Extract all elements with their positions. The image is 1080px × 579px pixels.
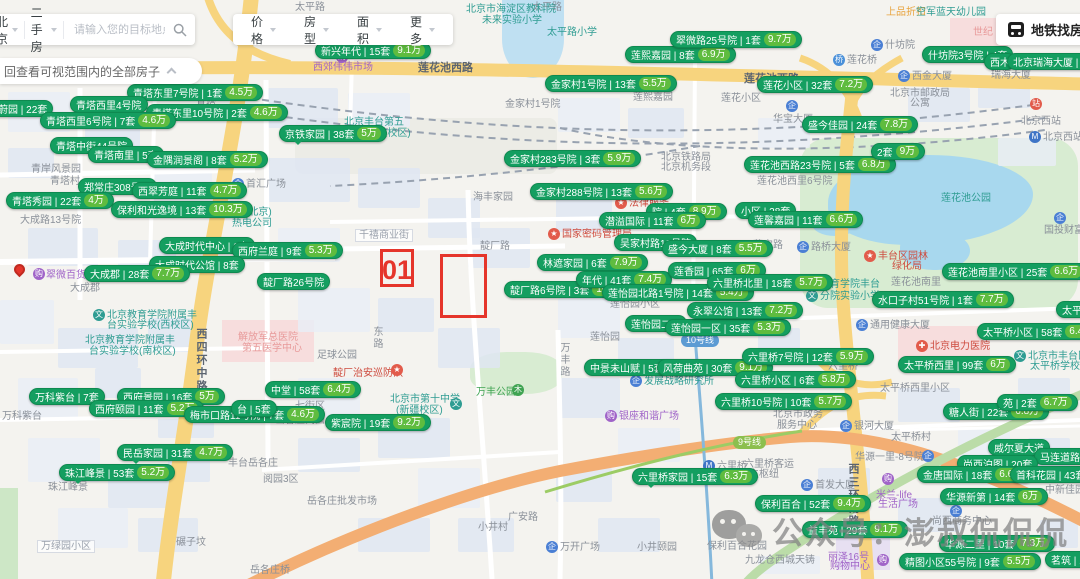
listing-badge-price: 6.4万 [1065, 325, 1080, 338]
listing-badge[interactable]: 华源二里 | 10套7.3万 [939, 535, 1055, 552]
listing-badge-price: 4.5万 [225, 86, 257, 99]
listing-badge-price: 4.7万 [210, 184, 242, 197]
listing-badge[interactable]: 西翠芳庭 | 11套4.7万 [132, 182, 247, 199]
listing-badge-label: 万科紫台 | 7套 [35, 389, 99, 404]
listing-badge-label: 蔚园 | 22套 [0, 101, 47, 116]
listing-badge-label: 太平桥 [1062, 302, 1080, 317]
listing-badge[interactable]: 莲花小区 | 32套7.2万 [757, 76, 873, 93]
listing-badge-price: 6万 [986, 358, 1010, 371]
listing-badge-label: 水口子村51号院 | 1套 [878, 292, 973, 307]
listing-badge[interactable]: 太平桥小区 | 58套6.4万 [977, 323, 1080, 340]
listing-badge-label: 益丰苑 | 29套 [808, 522, 867, 537]
listing-badge-label: 青塔西里4号院 [76, 97, 142, 112]
listing-badge-label: 莲花小区 | 32套 [763, 77, 832, 92]
listing-badge-price: 5.5万 [735, 242, 767, 255]
listing-badge-price: 4.6万 [138, 114, 170, 127]
listing-badge-label: 民岳家园 | 31套 [123, 445, 192, 460]
listing-badge-price: 6.6万 [1050, 265, 1080, 278]
listing-badge-price: 5.2万 [137, 466, 169, 479]
listing-badge-label: 金唐国际 | 18套 [923, 467, 992, 482]
listing-badge-label: 北京瑞海大厦 | 1套 [1013, 54, 1080, 69]
listing-badge-price: 4万 [84, 194, 108, 207]
listing-badge-label: 金家村288号院 | 13套 [536, 184, 632, 199]
listing-badge[interactable]: 金家村1号院 | 13套5.5万 [545, 75, 677, 92]
listing-badge-label: 大成郡 | 28套 [90, 266, 149, 281]
listing-badge[interactable]: 六里桥7号院 | 12套5.9万 [742, 348, 874, 365]
map-screen: 太平路太平路北京市海淀区教科院未来实验小学太平路小学上品折扣空军蓝天幼儿园世纪青… [0, 0, 1080, 579]
listing-badge[interactable]: 中堂 | 58套6.4万 [265, 381, 361, 398]
listing-badge[interactable]: 益丰苑 | 29套9.1万 [802, 521, 908, 538]
city-selector[interactable]: 北京 [0, 13, 24, 47]
listing-badge[interactable]: 莲熙嘉园 | 8套6.9万 [625, 46, 736, 63]
chevron-down-icon [323, 28, 329, 35]
listing-badge[interactable]: 太平桥西里 | 99套6万 [898, 356, 1016, 373]
listing-badge[interactable]: 华源新第 | 14套6万 [940, 488, 1048, 505]
listing-badge-label: 六里桥家园 | 15套 [638, 469, 717, 484]
listing-badge[interactable]: 潜溢国际 | 11套6万 [599, 212, 706, 229]
listing-badge-price: 5.5万 [1003, 555, 1035, 568]
listing-badge-price: 5.8万 [818, 373, 850, 386]
filter-card: 价格 房型 面积 更多 [233, 14, 453, 45]
metro-search-button[interactable]: 地铁找房 [996, 14, 1080, 45]
listing-badge[interactable]: 莲馨嘉园 | 11套6.6万 [748, 211, 863, 228]
listing-badge-label: 华源二里 | 10套 [945, 536, 1014, 551]
listing-badge-price: 5.9万 [603, 152, 635, 165]
chevron-up-icon[interactable] [167, 68, 177, 78]
listing-badge-label: 翠微路25号院 | 1套 [676, 32, 761, 47]
listing-badge[interactable]: 莲花池南里小区 | 25套6.6万 [942, 263, 1080, 280]
listing-badge[interactable]: 茗筑 | 17套 [1045, 551, 1080, 568]
listing-badge-label: 茗筑 | 17套 [1051, 552, 1080, 567]
listing-badge[interactable]: 大成郡 | 28套7.7万 [84, 265, 190, 282]
listing-badge-price: 5万 [357, 127, 381, 140]
annotation-rect-2 [440, 254, 487, 318]
listing-badge-label: 永翠公馆 | 13套 [693, 303, 762, 318]
filter-price[interactable]: 价格 [237, 13, 290, 47]
listing-badge-label: 中堂 | 58套 [271, 382, 320, 397]
listing-badge-price: 4.6万 [287, 408, 319, 421]
search-icon[interactable] [173, 23, 187, 37]
listing-badge-label: 潜溢国际 | 11套 [605, 213, 674, 228]
listing-badge[interactable]: 金家村283号院 | 3套5.9万 [504, 150, 641, 167]
listing-badge-price: 5.3万 [305, 244, 337, 257]
listing-badge[interactable]: 京铁家园 | 38套5万 [279, 125, 387, 142]
listing-badge-price: 7.8万 [880, 118, 912, 131]
listing-badge-label: 盛今大厦 | 8套 [668, 241, 732, 256]
listing-badge[interactable]: 六里桥北里 | 18套5.7万 [707, 274, 833, 291]
listing-badge-price: 6.9万 [698, 48, 730, 61]
category-selector[interactable]: 二手房 [25, 4, 64, 55]
filter-price-label: 价格 [251, 13, 266, 47]
listing-badge-price: 9.1万 [870, 523, 902, 536]
listing-badge-label: 马连道路13号院 [1040, 449, 1080, 464]
listing-badge-price: 9.7万 [764, 33, 796, 46]
listing-badge-label: 六里桥小区 | 6套 [741, 372, 815, 387]
filter-more[interactable]: 更多 [396, 13, 449, 47]
listing-badge[interactable]: 水口子村51号院 | 1套7.7万 [872, 291, 1014, 308]
listing-badge-label: 青塔东里7号院 | 1套 [133, 85, 222, 100]
listing-badge-price: 5.9万 [836, 350, 868, 363]
listing-badge[interactable]: 保利和光逸境 | 13套10.3万 [111, 201, 253, 218]
listing-badge[interactable]: 紫宸院 | 19套9.2万 [325, 414, 431, 431]
listing-badge-label: 紫宸院 | 19套 [331, 415, 390, 430]
category-label: 二手房 [31, 4, 48, 55]
listing-badge-label: 青塔西里6号院 | 7套 [46, 113, 135, 128]
listing-badge[interactable]: 六里桥家园 | 15套6.3万 [632, 468, 758, 485]
listing-badge-label: 金隅润景阁 | 8套 [153, 152, 227, 167]
metro-icon [1008, 22, 1024, 37]
chevron-down-icon [270, 28, 276, 35]
listing-badge-price: 7.7万 [976, 293, 1008, 306]
listing-badge-label: 京铁家园 | 38套 [285, 126, 354, 141]
listing-badge[interactable]: 保利百合 | 52套9.4万 [755, 495, 871, 512]
listing-badge-label: 莲花池西路23号院 | 5套 [750, 157, 855, 172]
chevron-down-icon [429, 28, 435, 35]
listing-badge[interactable]: 民岳家园 | 31套4.7万 [117, 444, 233, 461]
listing-badge-label: 金家村1号院 | 13套 [551, 76, 636, 91]
filter-layout-label: 房型 [304, 13, 319, 47]
listing-badge[interactable]: 莲怡园一区 | 35套5.3万 [665, 319, 791, 336]
listing-badge[interactable]: 盛今佳园 | 24套7.8万 [802, 116, 918, 133]
listing-badge-label: 西府颐园 | 11套 [95, 401, 164, 416]
listing-badge-price: 6.6万 [826, 213, 858, 226]
listing-badge-price: 5.7万 [795, 276, 827, 289]
listing-badge-label: 2套 [877, 144, 893, 159]
listing-badge-price: 5.7万 [814, 395, 846, 408]
listing-badge[interactable]: 马连道路13号院 [1034, 448, 1080, 465]
listing-badge-label: 莲怡园一区 | 35套 [671, 320, 750, 335]
filter-area-label: 面积 [357, 13, 372, 47]
listing-badge[interactable]: 北京瑞海大厦 | 1套 [1007, 53, 1080, 70]
listing-badge-price: 9.2万 [393, 416, 425, 429]
listing-badge-label: 靛厂路26号院 [263, 274, 324, 289]
listing-badge-label: 林遮家园 | 6套 [543, 255, 607, 270]
listing-badge[interactable]: 盛今大厦 | 8套5.5万 [662, 240, 773, 257]
listing-badge[interactable]: 太平桥 [1056, 301, 1080, 318]
listing-badge[interactable]: 永翠公馆 | 13套7.2万 [687, 302, 803, 319]
notice-text: 回查看可视范围内的全部房子 [0, 63, 160, 80]
filter-layout[interactable]: 房型 [290, 13, 343, 47]
listing-badge-label: 首科花园 | 43套 [1016, 467, 1080, 482]
listing-badge[interactable]: 珠江峰景 | 53套5.2万 [59, 464, 175, 481]
listing-badge-label: 莲馨嘉园 | 11套 [754, 212, 823, 227]
listing-badge[interactable]: 金隅润景阁 | 8套5.2万 [147, 151, 268, 168]
listing-badge-price: 7.3万 [1017, 537, 1049, 550]
notice-bar[interactable]: 回查看可视范围内的全部房子 [0, 58, 202, 84]
listing-badge-label: 六里桥北里 | 18套 [713, 275, 792, 290]
metro-search-label: 地铁找房 [1031, 20, 1080, 39]
listing-badge[interactable]: 苑 | 2套6.7万 [997, 394, 1078, 411]
listing-badge-price: 6万 [1018, 490, 1042, 503]
listing-badge[interactable]: 靛厂路26号院 [257, 273, 330, 290]
listing-badge[interactable]: 金家村288号院 | 13套5.6万 [530, 183, 673, 200]
listing-badge[interactable]: 六里桥小区 | 6套5.8万 [735, 371, 856, 388]
listing-badge[interactable]: 青塔西里4号院 [70, 96, 148, 113]
listing-badge-price: 4.7万 [195, 446, 227, 459]
listing-badge-label: 保利和光逸境 | 13套 [117, 202, 206, 217]
search-box[interactable] [64, 23, 195, 37]
listing-badge-price: 6.7万 [1040, 396, 1072, 409]
listing-badge-price: 9万 [896, 145, 920, 158]
listing-badge[interactable]: 西府兰庭 | 9套5.3万 [232, 242, 343, 259]
filter-area[interactable]: 面积 [343, 13, 396, 47]
chevron-down-icon [51, 28, 57, 35]
listing-badge-label: 莲怡园北路1号院 | 14套 [608, 285, 713, 300]
listing-badge-label: 风荷曲苑 | 30套 [663, 360, 732, 375]
listing-badge-label: 盛今佳园 | 24套 [808, 117, 877, 132]
listing-badge[interactable]: 青塔西里6号院 | 7套4.6万 [40, 112, 176, 129]
listing-badge-label: 六里桥7号院 | 12套 [748, 349, 833, 364]
listing-badge-price: 5.3万 [753, 321, 785, 334]
listing-badge-label: 保利百合 | 52套 [761, 496, 830, 511]
listing-badge-label: 珠江峰景 | 53套 [65, 465, 134, 480]
listing-badge-price: 5.6万 [635, 185, 667, 198]
listing-badge-price: 6万 [677, 214, 701, 227]
listing-badge-price: 6.4万 [323, 383, 355, 396]
listing-badge[interactable]: 台 | 5套 [231, 400, 277, 417]
listing-badge[interactable]: 林遮家园 | 6套7.9万 [537, 254, 648, 271]
listing-badge-label: 西翠芳庭 | 11套 [138, 183, 207, 198]
filter-more-label: 更多 [410, 13, 425, 47]
listing-badge-price: 6.3万 [720, 470, 752, 483]
listing-badge[interactable]: 2套9万 [871, 143, 925, 160]
listing-badge-label: 太平桥西里 | 99套 [904, 357, 983, 372]
listing-badge-label: 莲花池南里小区 | 25套 [948, 264, 1047, 279]
city-label: 北京 [0, 13, 8, 47]
listing-badge[interactable]: 首科花园 | 43套7.3万 [1010, 466, 1080, 483]
listing-badge[interactable]: 精图小区55号院 | 9套5.5万 [899, 553, 1041, 570]
listing-badge-label: 精图小区55号院 | 9套 [905, 554, 1000, 569]
listing-badge-price: 7.2万 [765, 304, 797, 317]
listing-badge[interactable]: 莲花池西路23号院 | 5套6.8万 [744, 156, 896, 173]
listing-badge-price: 7.2万 [835, 78, 867, 91]
annotation-label: 01 [382, 255, 412, 286]
listing-badge-label: 华源新第 | 14套 [946, 489, 1015, 504]
listing-badge-price: 7.9万 [610, 256, 642, 269]
toolbar-card: 北京 二手房 [0, 14, 195, 45]
listing-badge-label: 莲熙嘉园 | 8套 [631, 47, 695, 62]
listing-badge-label: 中景未山赋 | 5套 [590, 360, 664, 375]
listing-badge[interactable]: 青塔秀园 | 22套4万 [6, 192, 114, 209]
listing-badge-label: 西府兰庭 | 9套 [238, 243, 302, 258]
listing-badge-price: 5.2万 [230, 153, 262, 166]
listing-badge-price: 7.7万 [152, 267, 184, 280]
listing-badge-price: 10.3万 [209, 203, 246, 216]
listing-badge-price: 5.5万 [639, 77, 671, 90]
search-input[interactable] [72, 23, 167, 37]
listing-badge[interactable]: 翠微路25号院 | 1套9.7万 [670, 31, 802, 48]
listing-badge-price: 4.6万 [250, 106, 282, 119]
map-badges: 新兴年代 | 15套9.1万青塔东里7号院 | 1套4.5万青塔西里4号院青塔东… [0, 0, 1080, 579]
listing-badge-price: 9.4万 [833, 497, 865, 510]
listing-badge-label: 青塔秀园 | 22套 [12, 193, 81, 208]
chevron-down-icon [12, 28, 18, 35]
listing-badge-label: 台 | 5套 [237, 401, 271, 416]
listing-badge-label: 太平桥小区 | 58套 [983, 324, 1062, 339]
chevron-down-icon [376, 28, 382, 35]
listing-badge[interactable]: 青塔东里7号院 | 1套4.5万 [127, 84, 263, 101]
listing-badge-label: 六里桥10号院 | 10套 [721, 394, 811, 409]
listing-badge[interactable]: 六里桥10号院 | 10套5.7万 [715, 393, 852, 410]
listing-badge-label: 金家村283号院 | 3套 [510, 151, 600, 166]
listing-badge-label: 苑 | 2套 [1003, 395, 1037, 410]
